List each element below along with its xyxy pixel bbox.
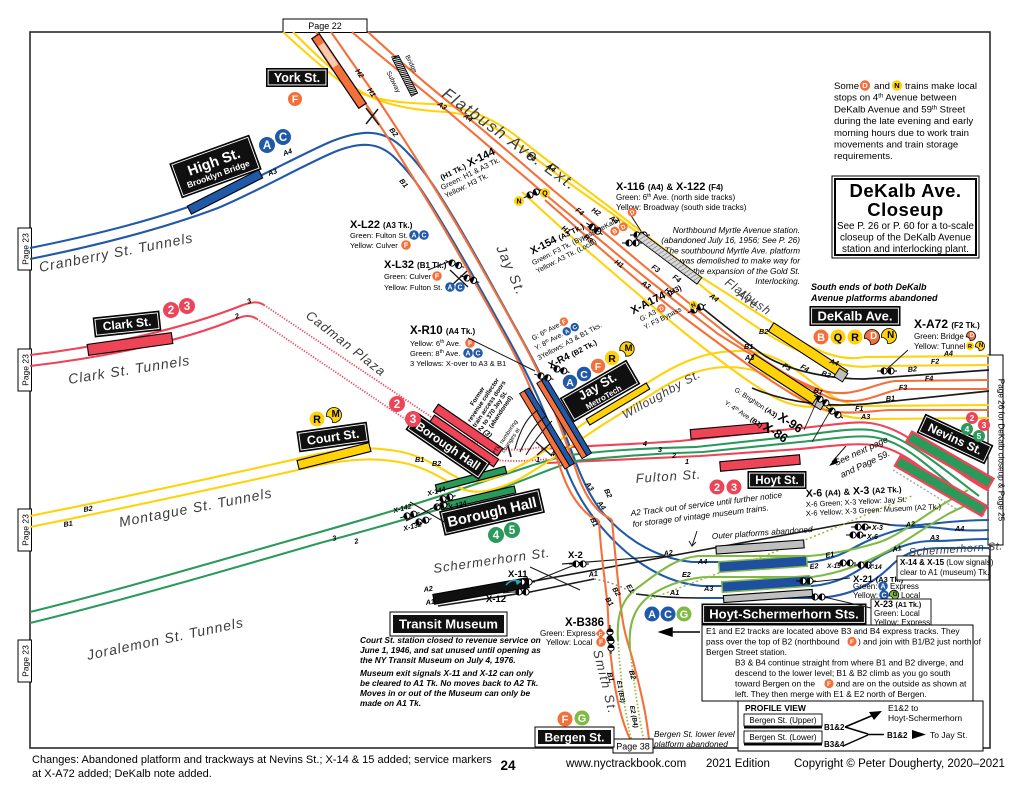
svg-text:F2: F2 [931,357,940,366]
svg-text:X-11: X-11 [508,569,528,580]
svg-text:A: A [447,285,452,292]
svg-text:A3: A3 [744,353,754,362]
svg-text:be cleared to A1 Tk. No moves: be cleared to A1 Tk. No moves back to A2… [360,678,538,688]
svg-text:B1: B1 [886,394,896,403]
svg-text:24: 24 [500,758,516,773]
svg-text:X-B386: X-B386 [565,617,604,629]
svg-text:X-L32 (B1 Tk.): X-L32 (B1 Tk.) [384,259,447,271]
svg-text:B1&2: B1&2 [887,731,908,740]
svg-text:A: A [411,233,416,240]
svg-text:closeup of the DeKalb Avenue: closeup of the DeKalb Avenue [840,233,972,244]
svg-text:D: D [970,333,975,339]
svg-text:X-6: X-6 [866,534,878,541]
svg-text:E2: E2 [682,570,691,579]
svg-text:left. They then merge with E1: left. They then merge with E1 & E2 north… [735,689,927,699]
svg-text:B2: B2 [83,504,94,514]
svg-text:Bergen St.: Bergen St. [544,731,604,745]
svg-text:F: F [827,681,831,688]
svg-text:C: C [580,370,588,381]
svg-text:3: 3 [184,300,191,313]
svg-text:M: M [625,343,633,353]
svg-text:clear to A1 (museum) Tk.: clear to A1 (museum) Tk. [900,568,989,577]
svg-text:F: F [562,714,569,726]
svg-text:X-14 & X-15 (Low signals): X-14 & X-15 (Low signals) [900,558,994,567]
svg-text:X-15: X-15 [826,563,841,570]
svg-text:A: A [880,584,885,591]
svg-text:A2: A2 [904,519,915,529]
svg-text:B1: B1 [744,342,753,351]
svg-text:C: C [475,351,480,358]
svg-text:A: A [566,378,574,389]
svg-text:A3: A3 [929,533,939,542]
svg-text:was demolished to make way for: was demolished to make way for [680,256,802,266]
svg-text:Yellow: Tunnel: Yellow: Tunnel [914,342,966,351]
svg-text:(abandoned July 16, 1956; See: (abandoned July 16, 1956; See P. 26) [661,235,800,245]
svg-text:E1: E1 [825,549,835,560]
svg-text:3: 3 [982,420,987,430]
svg-text:4: 4 [965,424,970,434]
svg-text:Green: 6th Ave. (north side tr: Green: 6th Ave. (north side tracks) [616,193,736,202]
svg-text:made on A1 Tk.: made on A1 Tk. [360,698,421,708]
svg-text:Green:: Green: [853,582,877,591]
svg-text:pass over the top of B2 (north: pass over the top of B2 (northbound [706,637,840,647]
svg-text:F: F [435,274,440,281]
svg-text:Green: Culver: Green: Culver [384,272,432,281]
svg-text:A: A [263,139,272,152]
svg-text:Interlocking.: Interlocking. [755,276,800,286]
svg-text:D: D [862,81,868,90]
svg-text:N: N [894,81,899,90]
svg-text:Hoyt-Schermerhorn Sts.: Hoyt-Schermerhorn Sts. [709,607,859,622]
svg-text:F: F [292,95,298,106]
svg-text:B: B [817,332,825,344]
svg-text:Page 23: Page 23 [21,645,31,677]
svg-text:platform abandoned: platform abandoned [653,739,728,749]
svg-text:DeKalb Ave.: DeKalb Ave. [849,180,961,201]
svg-text:1: 1 [685,457,689,466]
svg-text:C: C [457,285,462,292]
svg-text:B2: B2 [759,327,768,336]
svg-text:A4: A4 [954,524,964,533]
svg-text:Bergen St. (Lower): Bergen St. (Lower) [749,733,816,742]
svg-text:X-R10 (A4 Tk.): X-R10 (A4 Tk.) [410,325,475,337]
svg-text:Some: Some [834,81,859,92]
svg-text:G: G [578,713,586,725]
svg-text:E1&2 to: E1&2 to [888,703,919,713]
svg-text:morning hours due to work trai: morning hours due to work train [834,128,969,139]
svg-text:Page 26 for DeKalb closeup & P: Page 26 for DeKalb closeup & Page 25 [997,379,1006,522]
svg-text:Hoyt-Schermerhorn: Hoyt-Schermerhorn [888,713,962,723]
svg-text:A2: A2 [662,548,673,558]
svg-text:trains make local: trains make local [905,81,977,92]
svg-text:A2: A2 [422,584,433,594]
svg-text:Green: Express: Green: Express [540,629,596,638]
svg-text:Bergen St. (Upper): Bergen St. (Upper) [749,716,816,725]
svg-text:Yellow: Fulton St.: Yellow: Fulton St. [384,283,442,292]
svg-text:Page 38: Page 38 [616,742,650,752]
svg-text:X-3: X-3 [871,525,883,532]
svg-text:stops on 4th Avenue between: stops on 4th Avenue between [834,93,957,104]
svg-text:Page 23: Page 23 [21,354,31,386]
svg-text:R: R [851,332,859,344]
svg-text:Court St. station closed to re: Court St. station closed to revenue serv… [360,635,541,645]
svg-text:Copyright © Peter Dougherty, 2: Copyright © Peter Dougherty, 2020–2021 [794,758,1005,770]
svg-text:To Jay St.: To Jay St. [930,730,967,740]
svg-text:B1: B1 [63,519,74,529]
svg-text:N: N [887,330,894,341]
svg-text:Avenue platforms abandoned: Avenue platforms abandoned [810,293,938,303]
svg-text:2: 2 [168,304,174,317]
svg-text:Closeup: Closeup [867,199,943,220]
svg-text:X-L22 (A3 Tk.): X-L22 (A3 Tk.) [350,219,413,231]
svg-text:X-12: X-12 [486,594,506,605]
svg-text:Express: Express [890,582,919,591]
svg-text:G: G [680,609,688,621]
svg-text:The southbound Myrtle Ave. pla: The southbound Myrtle Ave. platform [664,245,800,255]
svg-text:G: G [893,591,898,598]
svg-text:3 Yellows: X-over to A3 & B1: 3 Yellows: X-over to A3 & B1 [410,359,506,368]
svg-text:5: 5 [509,524,516,537]
svg-text:descend to the lower level; B1: descend to the lower level; B1 & B2 clim… [735,668,951,678]
svg-text:3: 3 [410,413,417,426]
svg-text:A1: A1 [424,597,435,607]
svg-text:X-14: X-14 [867,564,882,571]
svg-text:June 1, 1946, and sat unused u: June 1, 1946, and sat unused until openi… [360,645,541,655]
svg-text:R: R [968,344,972,350]
svg-text:C: C [421,233,426,240]
svg-text:B1&2: B1&2 [824,723,845,732]
svg-text:B2: B2 [432,459,441,468]
svg-text:R: R [608,354,616,365]
svg-text:E1 and E2 tracks are located a: E1 and E2 tracks are located above B3 an… [706,626,960,636]
svg-text:Green: Local: Green: Local [874,609,920,618]
svg-text:Bergen Street station.: Bergen Street station. [706,647,787,657]
svg-text:2021 Edition: 2021 Edition [706,758,770,770]
svg-text:Northbound Myrtle Avenue stati: Northbound Myrtle Avenue station. [673,225,800,235]
svg-text:B2: B2 [907,364,917,374]
svg-text:York St.: York St. [274,71,320,85]
svg-text:and are on the outside as show: and are on the outside as shown at [836,679,967,689]
svg-text:Yellow: Culver: Yellow: Culver [350,241,398,250]
svg-text:N: N [516,199,521,206]
svg-text:F: F [468,341,473,348]
svg-text:DeKalb Ave.: DeKalb Ave. [818,308,893,323]
svg-text:Changes: Abandoned platform an: Changes: Abandoned platform and trackway… [32,754,492,766]
svg-text:3: 3 [658,445,662,454]
svg-text:B3&4: B3&4 [824,740,845,749]
svg-text:South ends of both DeKalb: South ends of both DeKalb [811,282,927,292]
svg-text:F: F [850,639,854,646]
svg-text:B1: B1 [415,455,424,464]
svg-text:D: D [870,331,877,342]
svg-text:A: A [648,609,656,621]
svg-text:Museum exit signals X-11 and X: Museum exit signals X-11 and X-12 can on… [360,668,534,678]
svg-text:www.nyctrackbook.com: www.nyctrackbook.com [565,758,686,770]
svg-text:M: M [332,409,340,420]
svg-text:Page 23: Page 23 [21,514,31,546]
svg-text:4: 4 [550,449,555,458]
svg-text:A3: A3 [860,412,870,421]
svg-text:X-116 (A4) & X-122 (F4): X-116 (A4) & X-122 (F4) [616,181,723,193]
svg-text:F: F [404,243,409,250]
svg-text:A1: A1 [587,569,598,579]
svg-text:Yellow: 6th Ave.: Yellow: 6th Ave. [410,339,461,348]
svg-text:F: F [595,362,601,373]
svg-text:A3: A3 [703,584,713,593]
svg-text:Green: 8th Ave.: Green: 8th Ave. [410,349,460,358]
svg-text:Bergen St. lower level: Bergen St. lower level [654,729,736,739]
svg-text:DeKalb Avenue and 59th Street: DeKalb Avenue and 59th Street [834,104,966,115]
svg-text:E2: E2 [809,561,819,571]
svg-text:Q: Q [542,191,548,198]
svg-text:4: 4 [493,529,500,542]
svg-text:during the late evening and ea: during the late evening and early [834,116,973,127]
svg-text:A1: A1 [669,588,679,597]
svg-text:5: 5 [977,431,982,441]
svg-text:station and interlocking plant: station and interlocking plant. [842,244,969,255]
svg-text:R: R [313,414,321,426]
svg-text:A4: A4 [697,557,707,566]
svg-text:3: 3 [731,482,737,494]
svg-text:C: C [279,131,288,144]
svg-text:at X-A72 added; DeKalb note ad: at X-A72 added; DeKalb note added. [32,768,212,780]
svg-text:2: 2 [671,451,676,460]
svg-text:) and join with B1/B2 just nor: ) and join with B1/B2 just north of [858,637,982,647]
svg-text:the expansion of the Gold St.: the expansion of the Gold St. [693,266,800,276]
svg-text:X-2: X-2 [568,550,583,561]
svg-text:1: 1 [536,455,540,464]
svg-text:toward Bergen on the: toward Bergen on the [735,679,815,689]
svg-text:2: 2 [970,413,975,423]
svg-text:2: 2 [714,482,720,494]
svg-text:B3 & B4 continue straight from: B3 & B4 continue straight from where B1 … [735,658,964,668]
svg-text:Green: Fulton St.: Green: Fulton St. [350,231,408,240]
svg-text:C: C [664,609,672,621]
svg-text:Hoyt St.: Hoyt St. [755,475,798,487]
svg-text:F: F [599,640,604,647]
svg-text:movements and train storage: movements and train storage [834,140,958,151]
svg-text:See P. 26 or P. 60 for a to-sc: See P. 26 or P. 60 for a to-scale [837,221,974,232]
svg-text:F4: F4 [925,374,934,383]
svg-text:Page 23: Page 23 [21,233,31,265]
svg-text:and: and [874,81,890,92]
svg-text:A: A [465,351,470,358]
svg-text:2: 2 [394,398,400,411]
svg-text:requirements.: requirements. [834,151,893,162]
svg-text:Page 22: Page 22 [308,21,342,31]
svg-text:Moves in or out of the Museum: Moves in or out of the Museum can only b… [360,688,530,698]
svg-text:the NY Transit Museum on July: the NY Transit Museum on July 4, 1976. [360,655,516,665]
svg-text:Q: Q [834,332,842,344]
svg-text:4: 4 [642,439,647,448]
svg-text:Green: Bridge: Green: Bridge [914,332,964,341]
svg-text:F3: F3 [899,383,908,392]
svg-text:Yellow: Local: Yellow: Local [546,638,593,647]
svg-text:Transit Museum: Transit Museum [399,617,498,632]
svg-text:PROFILE VIEW: PROFILE VIEW [745,703,807,713]
svg-text:N: N [979,343,983,349]
